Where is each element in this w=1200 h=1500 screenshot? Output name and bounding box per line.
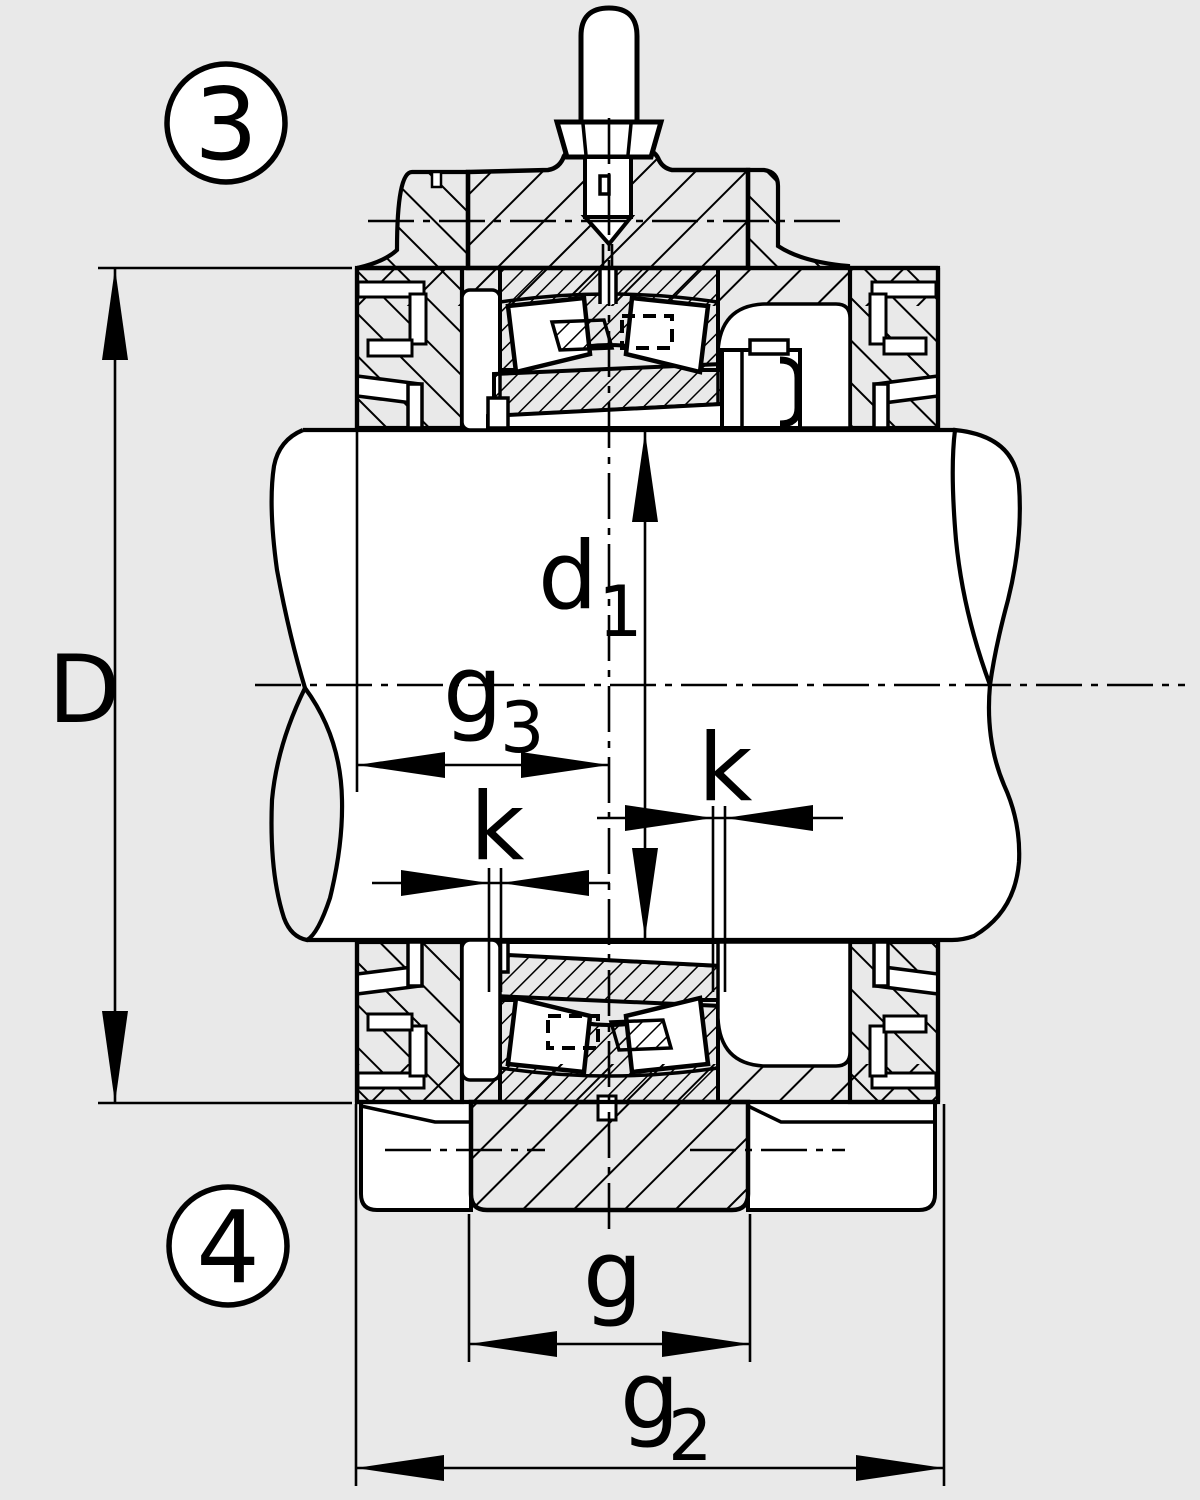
labyrinth-groove [368, 340, 412, 356]
arrowhead-left [356, 1455, 444, 1481]
labyrinth-groove [410, 1026, 426, 1076]
inner-ring-rib [552, 320, 612, 350]
housing-base [361, 1096, 935, 1210]
seal-lip [874, 942, 888, 986]
arrowhead-right [856, 1455, 944, 1481]
dim-label-k-left: k [470, 773, 525, 882]
dim-label-D: D [48, 636, 120, 745]
dim-label-g: g [583, 1221, 643, 1330]
locking-washer-tab [750, 340, 788, 354]
dim-g: g [469, 1214, 750, 1362]
nipple-socket [600, 176, 609, 194]
labyrinth-groove [410, 294, 426, 344]
arrowhead-up [102, 268, 128, 360]
callout-4: 4 [169, 1187, 287, 1306]
labyrinth-groove [368, 1014, 412, 1030]
callout-number: 3 [194, 66, 258, 183]
nipple-stem [581, 8, 637, 122]
seal-lip [408, 942, 422, 986]
seal-lip [874, 384, 888, 428]
roller-right [626, 298, 708, 372]
labyrinth-groove [884, 338, 926, 354]
housing-cap [357, 8, 848, 268]
callout-number: 4 [196, 1189, 260, 1306]
housing-cavity [718, 942, 850, 1066]
dim-label-d1-sub: 1 [598, 571, 643, 653]
roller-left [508, 998, 590, 1072]
technical-drawing-bearing-housing: D d 1 g 3 k [0, 0, 1200, 1500]
sleeve-flange [488, 398, 508, 428]
dim-label-k-right: k [698, 714, 753, 823]
labyrinth-groove [884, 1016, 926, 1032]
dim-label-d1: d [538, 522, 598, 631]
seal-lip [408, 384, 422, 428]
cap-right-ring [748, 170, 848, 268]
cap-slot [432, 172, 441, 187]
inner-ring-rib [611, 1020, 671, 1050]
dim-label-g3: g [443, 636, 503, 745]
housing-cavity-gap [462, 940, 500, 1080]
dim-label-g2-sub: 2 [668, 1395, 713, 1477]
arrowhead-down [102, 1011, 128, 1103]
arrowhead-left [469, 1331, 557, 1357]
dim-label-g3-sub: 3 [500, 687, 545, 769]
callout-3: 3 [167, 64, 285, 183]
